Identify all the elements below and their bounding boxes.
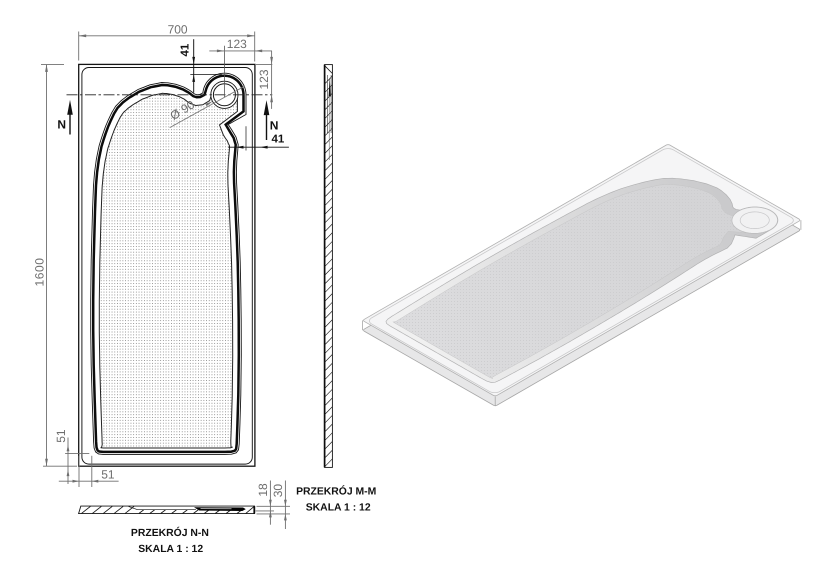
svg-text:1600: 1600: [33, 257, 47, 286]
svg-text:700: 700: [168, 23, 188, 37]
svg-text:PRZEKRÓJ M-M: PRZEKRÓJ M-M: [296, 485, 376, 498]
svg-text:30: 30: [271, 484, 285, 498]
svg-text:123: 123: [227, 37, 247, 51]
svg-text:PRZEKRÓJ N-N: PRZEKRÓJ N-N: [131, 526, 209, 539]
svg-text:N: N: [270, 118, 279, 132]
svg-text:123: 123: [257, 69, 271, 89]
svg-text:41: 41: [272, 134, 285, 146]
svg-text:SKALA 1 : 12: SKALA 1 : 12: [138, 544, 203, 555]
svg-text:51: 51: [101, 468, 115, 482]
svg-text:51: 51: [54, 429, 68, 443]
svg-text:18: 18: [256, 483, 270, 497]
svg-text:41: 41: [180, 43, 192, 56]
svg-text:N: N: [57, 118, 66, 132]
svg-text:SKALA 1 : 12: SKALA 1 : 12: [306, 503, 371, 514]
